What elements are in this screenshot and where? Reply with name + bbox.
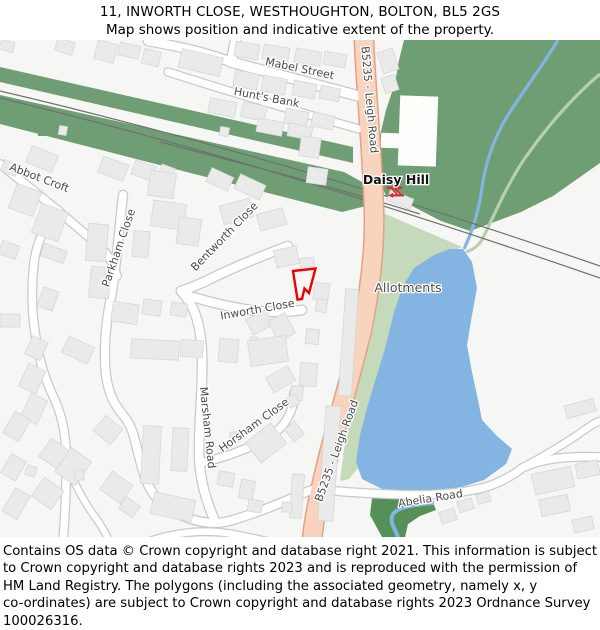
map-image: Mabel Street Hunt's Bank Abbot Croft Par…: [0, 40, 600, 537]
copyright-line: to Crown copyright and database rights 2…: [3, 560, 597, 577]
page-title: 11, INWORTH CLOSE, WESTHOUGHTON, BOLTON,…: [0, 0, 600, 20]
page-subtitle: Map shows position and indicative extent…: [0, 20, 600, 38]
copyright-line: co-ordinates) are subject to Crown copyr…: [3, 595, 597, 612]
title-block: 11, INWORTH CLOSE, WESTHOUGHTON, BOLTON,…: [0, 0, 600, 40]
copyright-line: Contains OS data © Crown copyright and d…: [3, 543, 597, 560]
label-allotments: Allotments: [374, 280, 441, 295]
copyright-line: 100026316.: [3, 613, 597, 630]
map-canvas: Mabel Street Hunt's Bank Abbot Croft Par…: [0, 40, 600, 537]
copyright-notice: Contains OS data © Crown copyright and d…: [0, 537, 600, 630]
label-daisy-hill: Daisy Hill: [363, 172, 429, 187]
copyright-line: HM Land Registry. The polygons (includin…: [3, 578, 597, 595]
